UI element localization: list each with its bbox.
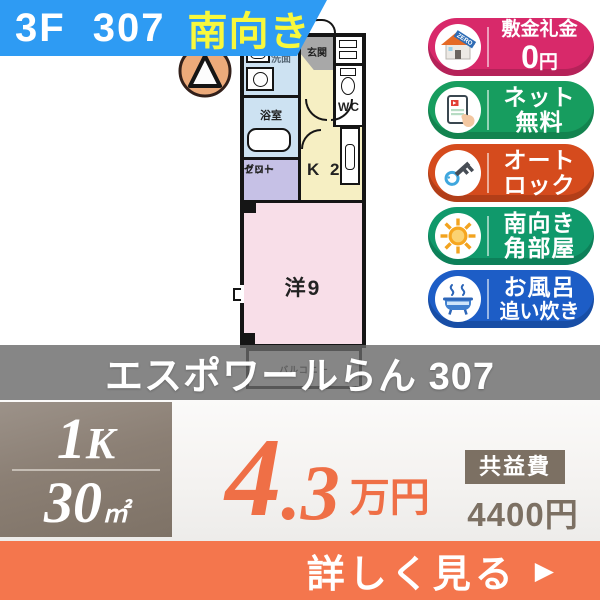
badge-text: 敷金礼金 0円 — [489, 20, 594, 74]
fee-label: 共益費 — [465, 450, 565, 484]
badge-bath-reheat: お風呂 追い炊き — [428, 270, 594, 328]
badge-text: 南向き 角部屋 — [489, 211, 594, 262]
pillar — [244, 333, 255, 344]
rent-decimal: .3 — [281, 462, 340, 524]
pillar — [244, 203, 256, 213]
house-zero-icon: ZERO — [435, 24, 481, 70]
rent-price: 4 .3 万円 — [185, 404, 470, 534]
room-main: 洋9 — [244, 203, 362, 344]
bathtub-reheat-icon — [435, 276, 481, 322]
floorplan: 洗面 浴室 クローゼット 玄関 WC K 2 — [240, 33, 366, 348]
layout-value: 1K — [0, 410, 172, 468]
rent-integer: 4 — [225, 434, 281, 524]
fee-value: 4400円 — [452, 488, 594, 536]
entrance-label: 玄関 — [307, 44, 327, 59]
area-value: 30㎡ — [0, 474, 172, 532]
badge-text: オート ロック — [489, 148, 594, 199]
shoe-cabinet-icon — [336, 37, 362, 63]
layout-area-box: 1K 30㎡ — [0, 402, 172, 537]
window-shutter — [233, 288, 241, 301]
room-closet: クローゼット — [244, 160, 298, 200]
summary-section: 1K 30㎡ 4 .3 万円 共益費 4400円 — [0, 400, 600, 541]
badge-auto-lock: オート ロック — [428, 144, 594, 202]
kitchen-counter-icon — [340, 127, 360, 185]
details-button[interactable]: 詳しく見る ▶ — [0, 541, 600, 600]
room-bathroom: 浴室 — [244, 98, 298, 157]
badge-text: お風呂 追い炊き — [489, 275, 594, 322]
listing-card: 洗面 浴室 クローゼット 玄関 WC K 2 — [0, 0, 600, 600]
badge-south-corner: 南向き 角部屋 — [428, 207, 594, 265]
washbasin-icon — [246, 67, 274, 91]
details-button-label: 詳しく見る — [307, 543, 517, 598]
rent-unit: 万円 — [350, 478, 430, 518]
badge-text: ネット 無料 — [489, 85, 594, 136]
main-room-label: 洋9 — [244, 272, 362, 302]
property-name-band: エスポワールらん 307 — [0, 345, 600, 400]
toilet-icon — [340, 68, 356, 76]
badge-free-internet: ネット 無料 — [428, 81, 594, 139]
internet-tablet-icon — [435, 87, 481, 133]
toilet-bowl-icon — [341, 77, 355, 95]
kitchen-label: K 2 — [307, 160, 342, 180]
floor-room-number: 3F 307 — [15, 6, 166, 51]
badge-deposit-zero: ZERO 敷金礼金 0円 — [428, 18, 594, 76]
direction-highlight: 南向き — [188, 0, 311, 57]
bathtub-icon — [247, 128, 291, 152]
bathroom-label: 浴室 — [244, 107, 298, 123]
header-banner: 3F 307 南向き — [0, 0, 327, 56]
arrow-right-icon: ▶ — [535, 556, 554, 586]
property-name: エスポワールらん 307 — [105, 345, 495, 400]
sun-icon — [435, 213, 481, 259]
key-icon — [435, 150, 481, 196]
